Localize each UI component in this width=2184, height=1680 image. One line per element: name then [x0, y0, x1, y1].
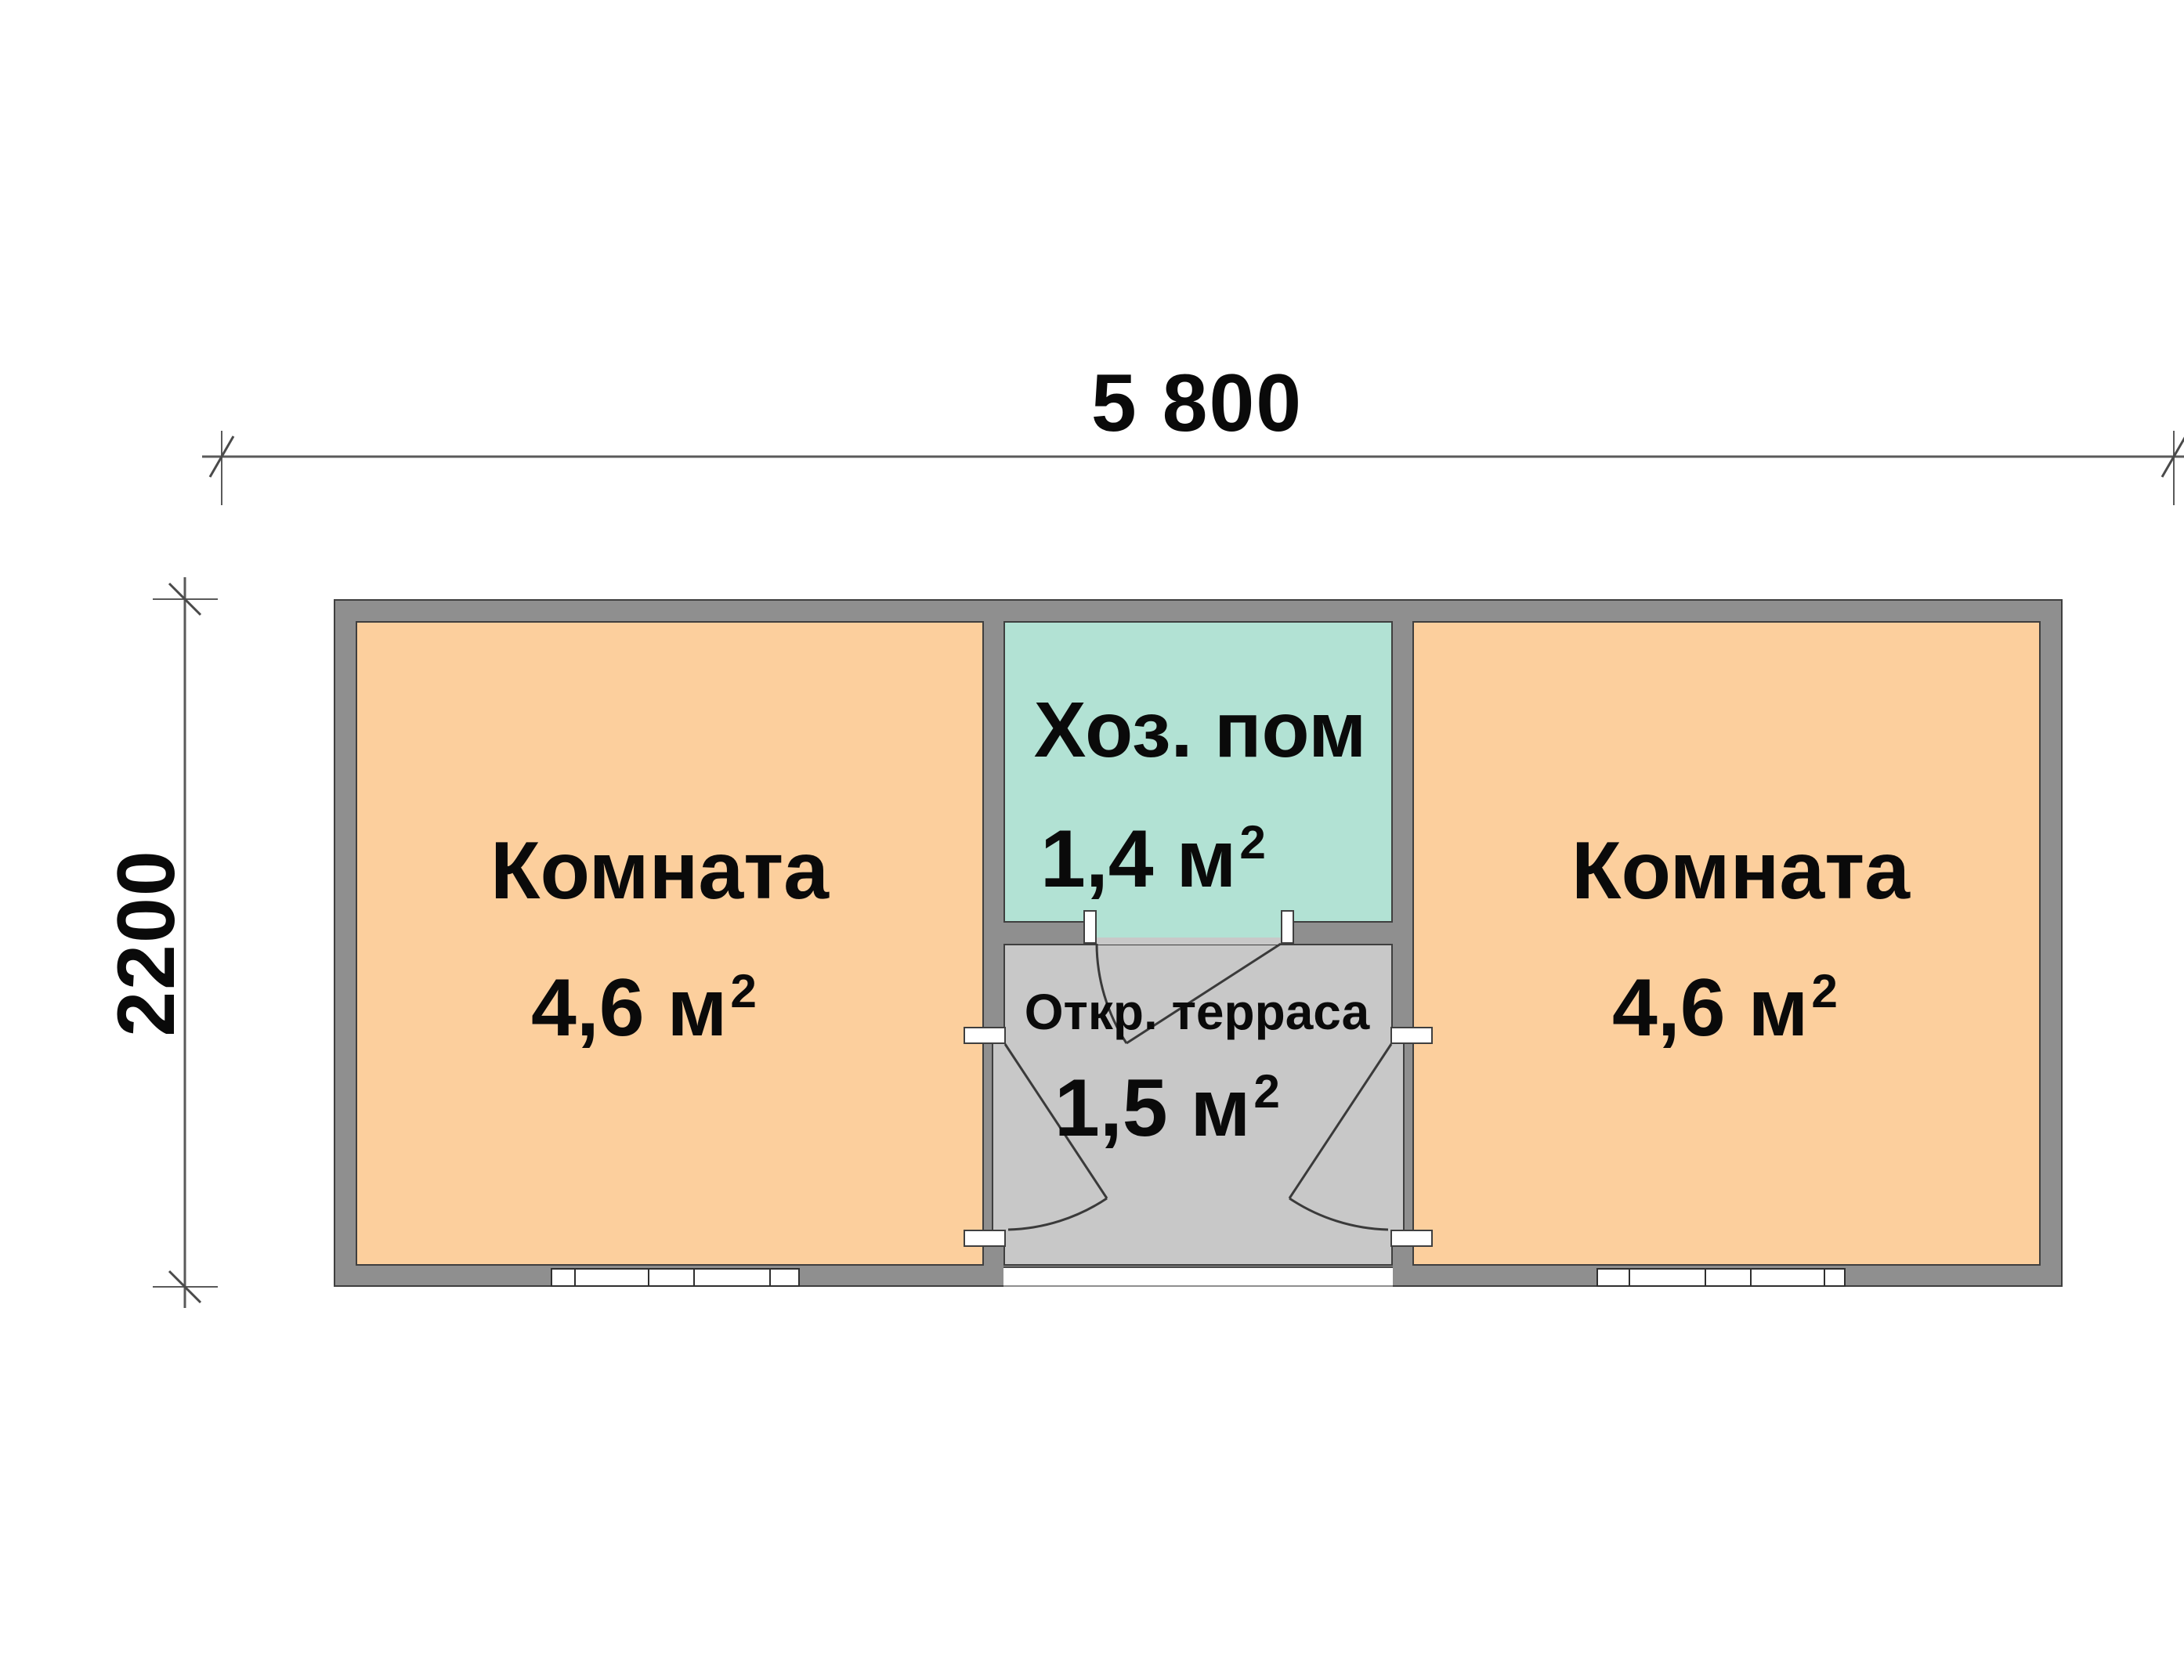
room-right-floor	[1412, 621, 2041, 1266]
dimension-tick-left-bottom	[169, 1271, 201, 1302]
window-mullion	[1824, 1270, 1825, 1285]
terrace-left-door-opening	[992, 1044, 1006, 1231]
terrace-entrance-threshold	[1003, 1266, 1393, 1287]
terrace-area-sup: 2	[1253, 1064, 1280, 1118]
dimension-tick-left-top	[169, 583, 201, 615]
room-right-area: 4,6 м2	[1612, 967, 1838, 1049]
room-right-name: Комната	[1571, 830, 1910, 912]
room-left-floor	[356, 621, 984, 1266]
utility-room-area-value: 1,4 м	[1040, 814, 1236, 905]
utility-room-name: Хоз. пом	[1034, 691, 1367, 769]
terrace-area-value: 1,5 м	[1054, 1063, 1250, 1154]
room-left-area: 4,6 м2	[531, 967, 757, 1049]
window-mullion	[1629, 1270, 1630, 1285]
utility-door-opening	[1097, 921, 1281, 938]
room-right-area-sup: 2	[1811, 964, 1838, 1017]
right-door-jamb-top	[1390, 1027, 1433, 1044]
left-door-jamb-bottom	[964, 1230, 1006, 1247]
terrace-name: Откр. терраса	[1025, 987, 1370, 1037]
window-mullion	[648, 1270, 649, 1285]
left-door-jamb-top	[964, 1027, 1006, 1044]
utility-room-area: 1,4 м2	[1040, 818, 1266, 900]
window-left	[551, 1268, 800, 1287]
dimension-tick-top-right	[2162, 436, 2184, 477]
utility-door-jamb-right	[1281, 910, 1294, 944]
window-mullion	[693, 1270, 695, 1285]
room-left-name: Комната	[490, 830, 829, 912]
utility-door-jamb-left	[1083, 910, 1097, 944]
floor-plan: 5 800 2200 Комната 4,6 м2 Хоз. пом 1,4 м…	[0, 0, 2184, 1680]
room-left-area-sup: 2	[730, 964, 757, 1017]
room-left-area-value: 4,6 м	[531, 963, 727, 1053]
terrace-area: 1,5 м2	[1054, 1068, 1280, 1149]
window-mullion	[1750, 1270, 1752, 1285]
window-mullion	[769, 1270, 771, 1285]
dimension-height-label: 2200	[106, 849, 187, 1036]
right-door-jamb-bottom	[1390, 1230, 1433, 1247]
window-mullion	[1705, 1270, 1706, 1285]
dimension-width-label: 5 800	[1091, 363, 1303, 444]
window-mullion	[574, 1270, 576, 1285]
window-right	[1596, 1268, 1846, 1287]
utility-room-area-sup: 2	[1239, 815, 1266, 869]
dimension-tick-top-left	[210, 436, 233, 477]
utility-door-opening-floor	[1097, 938, 1281, 945]
terrace-right-door-opening	[1390, 1044, 1405, 1231]
room-right-area-value: 4,6 м	[1612, 963, 1808, 1053]
